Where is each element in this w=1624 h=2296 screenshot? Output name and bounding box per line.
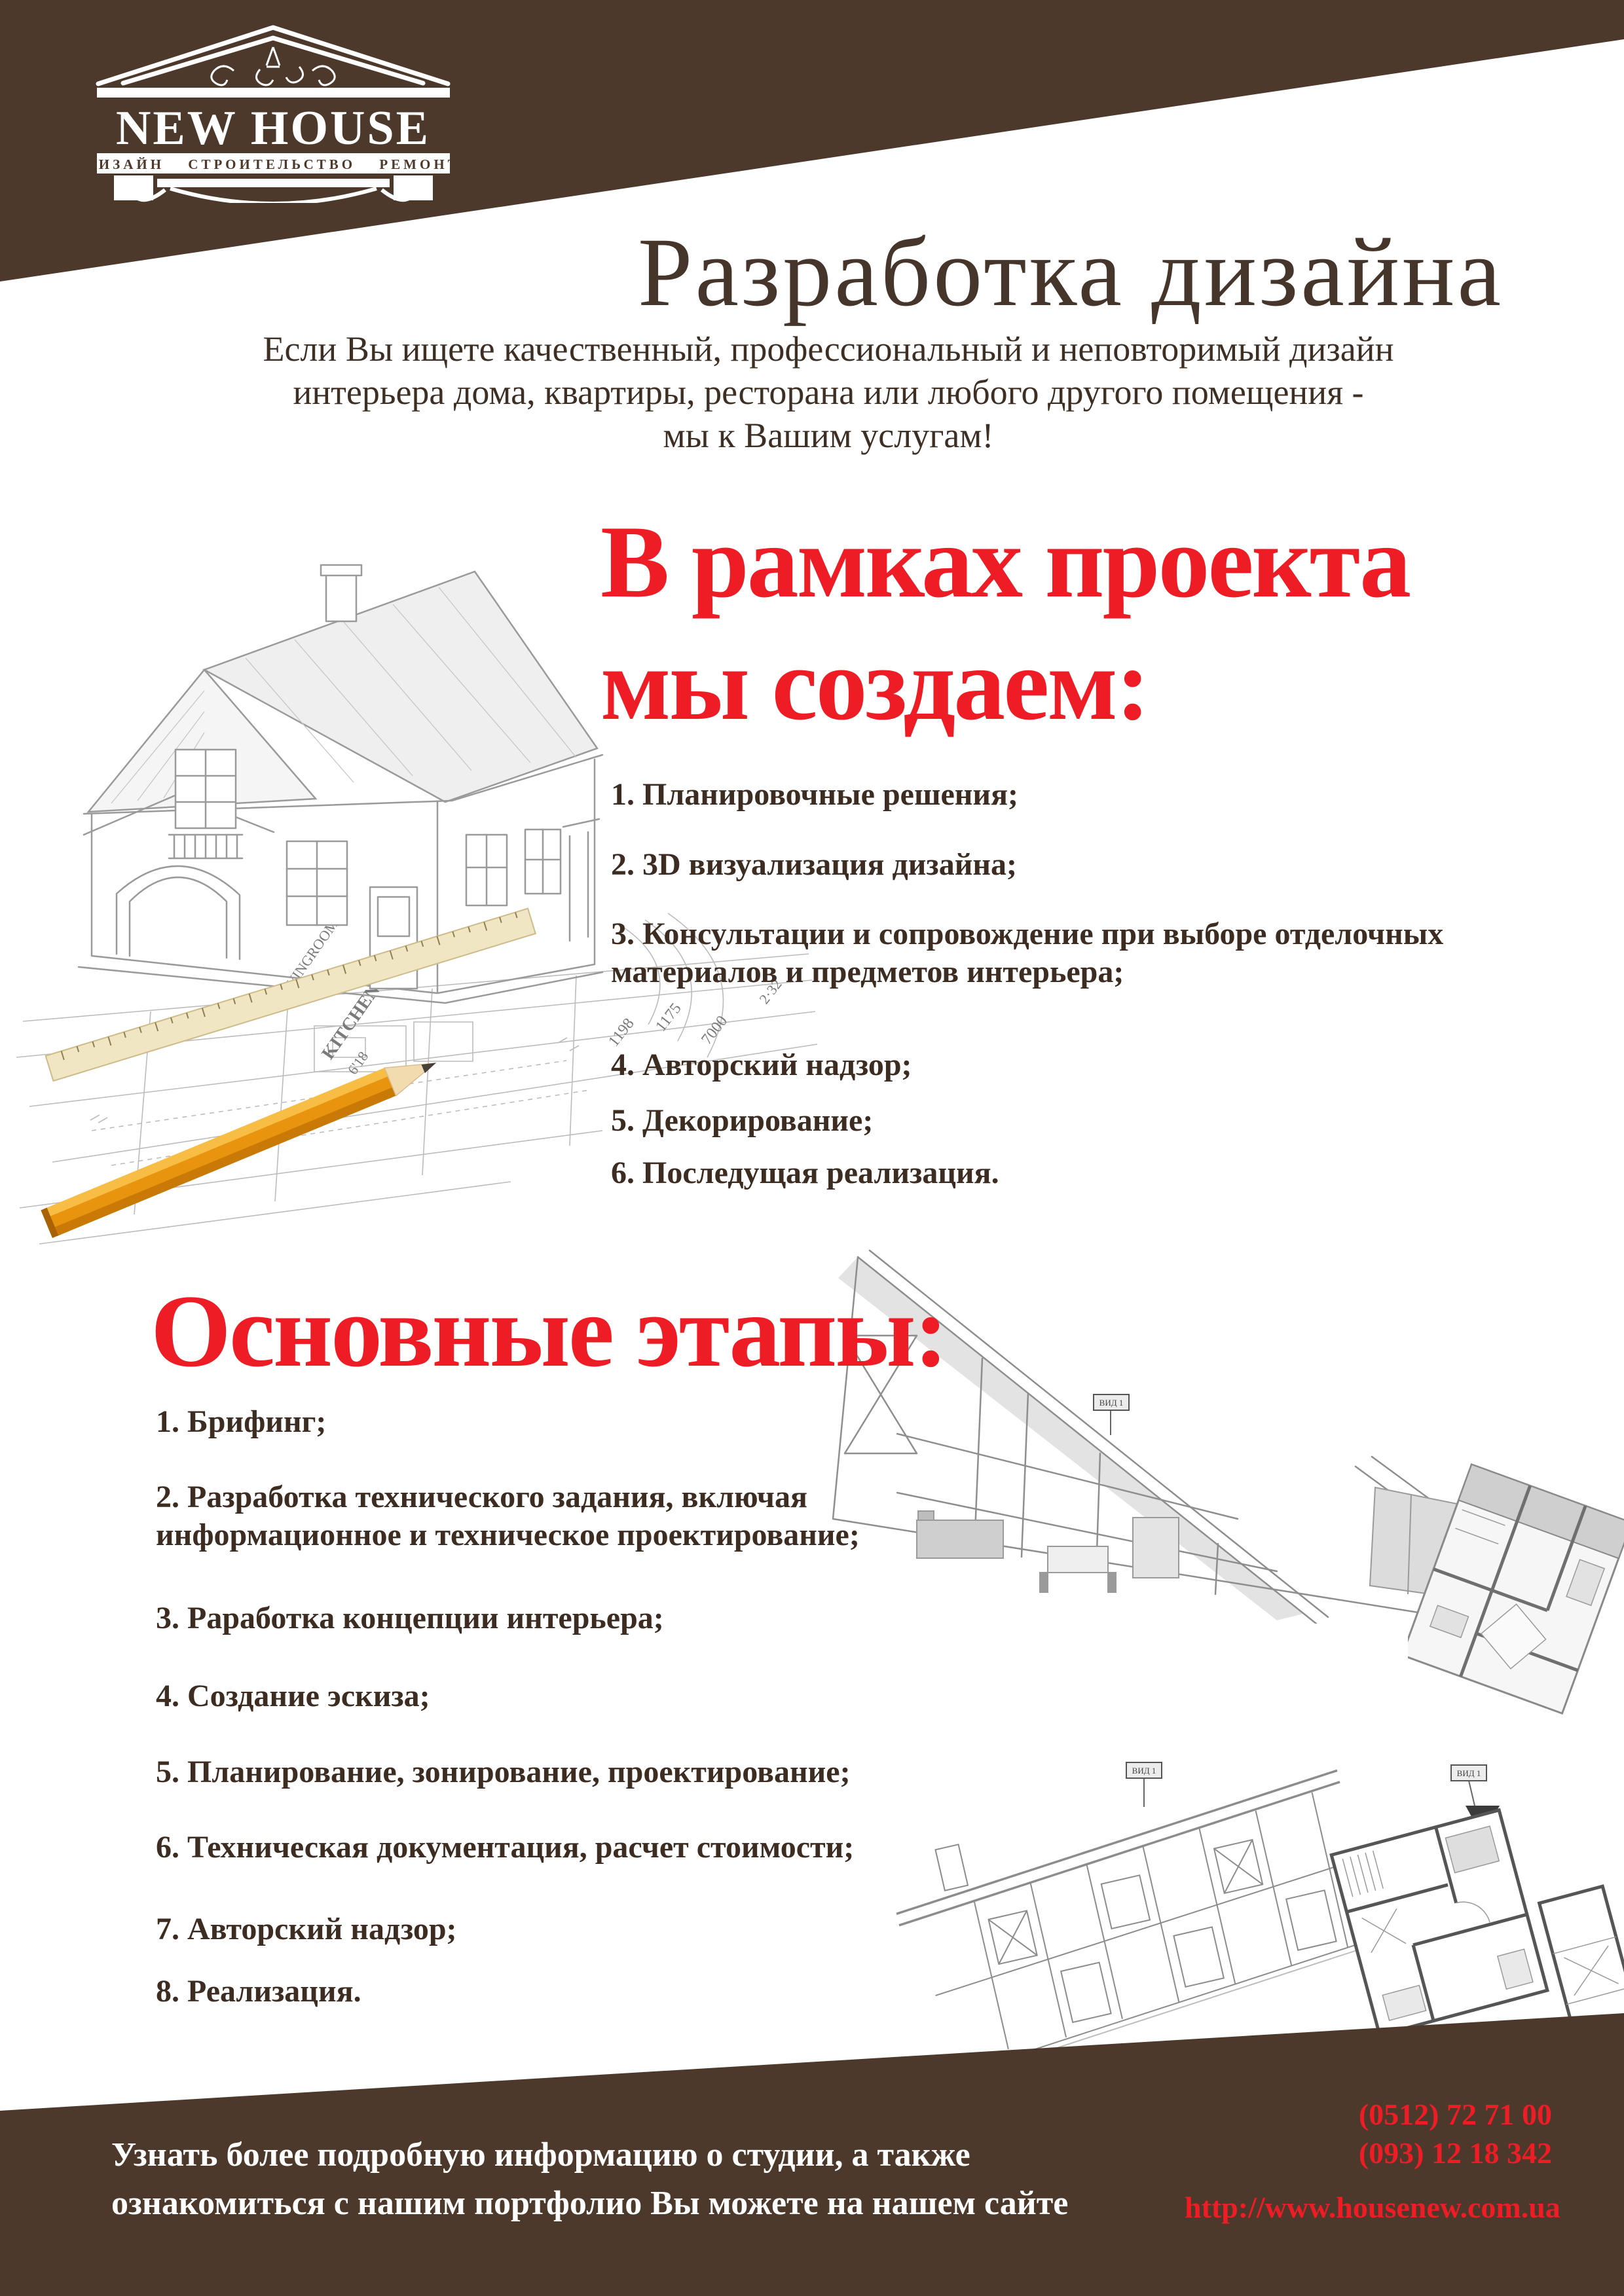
- phone-numbers: (0512) 72 71 00 (093) 12 18 342: [1359, 2095, 1552, 2172]
- sketch-label-view-flag: ВИД 1: [1099, 1398, 1124, 1408]
- list-item: 3. Консультации и сопровождение при выбо…: [611, 915, 1449, 991]
- view-flag-icon: ВИД 1: [1094, 1394, 1129, 1435]
- list-item: 1. Планировочные решения;: [611, 776, 1018, 814]
- create-heading-line-1: В рамках проекта: [600, 501, 1409, 623]
- list-item: 4. Авторский надзор;: [611, 1046, 912, 1084]
- create-heading-line-2: мы создаем:: [600, 623, 1409, 746]
- sections-plans-sketch-image: ВИД 1 ВИД 1: [877, 1722, 1624, 2049]
- phone-number-1: (0512) 72 71 00: [1359, 2095, 1552, 2134]
- list-item: 7. Авторский надзор;: [156, 1910, 457, 1948]
- logo-name: NEW HOUSE: [116, 101, 430, 155]
- list-item: 5. Планирование, зонирование, проектиров…: [156, 1753, 851, 1791]
- subtitle-line-3: мы к Вашим услугам!: [98, 414, 1559, 457]
- logo-columns-icon: [114, 175, 433, 200]
- pencil-icon: [41, 1049, 442, 1238]
- list-item: 6. Техническая документация, расчет стои…: [156, 1829, 854, 1867]
- new-house-logo-icon: NEW HOUSE ДИЗАЙН СТРОИТЕЛЬСТВО РЕМОНТ: [92, 20, 455, 203]
- subtitle-line-1: Если Вы ищете качественный, профессионал…: [98, 327, 1559, 371]
- website-url: http://www.housenew.com.ua: [1185, 2190, 1560, 2225]
- subtitle-line-2: интерьера дома, квартиры, ресторана или …: [98, 371, 1559, 414]
- list-item: 1. Брифинг;: [156, 1403, 326, 1441]
- logo-tagline: ДИЗАЙН СТРОИТЕЛЬСТВО РЕМОНТ: [92, 156, 455, 172]
- sketch-label-dim1: 1198: [605, 1015, 637, 1050]
- sketch-label-kitchen-size: 6'18: [344, 1048, 372, 1078]
- list-item: 2. Разработка технического задания, вклю…: [156, 1478, 922, 1554]
- list-item: 2. 3D визуализация дизайна;: [611, 846, 1017, 884]
- sketch-label-view-flag: ВИД 1: [1132, 1766, 1156, 1776]
- list-item: 4. Создание эскиза;: [156, 1677, 430, 1715]
- sketch-label-dim3: 7000: [698, 1013, 731, 1048]
- list-item: 8. Реализация.: [156, 1973, 361, 2011]
- list-item: 5. Декорирование;: [611, 1102, 873, 1140]
- create-heading: В рамках проекта мы создаем:: [600, 501, 1409, 746]
- logo-pediment-icon: [98, 27, 448, 84]
- page-subtitle: Если Вы ищете качественный, профессионал…: [98, 327, 1559, 457]
- footer-note: Узнать более подробную информацию о студ…: [111, 2131, 1068, 2228]
- sketch-label-view-flag: ВИД 1: [1457, 1768, 1481, 1778]
- phone-number-2: (093) 12 18 342: [1359, 2134, 1552, 2172]
- page-title: Разработка дизайна: [537, 216, 1604, 329]
- list-item: 6. Последущая реализация.: [611, 1154, 999, 1192]
- footer-note-line-2: ознакомиться с нашим портфолио Вы можете…: [111, 2179, 1068, 2228]
- flyer-page: NEW HOUSE ДИЗАЙН СТРОИТЕЛЬСТВО РЕМОНТ Ра…: [0, 0, 1624, 2296]
- list-item: 3. Раработка концепции интерьера;: [156, 1599, 664, 1637]
- stages-heading: Основные этапы:: [151, 1270, 946, 1393]
- footer-note-line-1: Узнать более подробную информацию о студ…: [111, 2131, 1068, 2179]
- ruler-icon: [46, 909, 536, 1081]
- view-flag-icon: ВИД 1: [1126, 1762, 1162, 1807]
- axonometric-plan-sketch-image: [1408, 1434, 1624, 1755]
